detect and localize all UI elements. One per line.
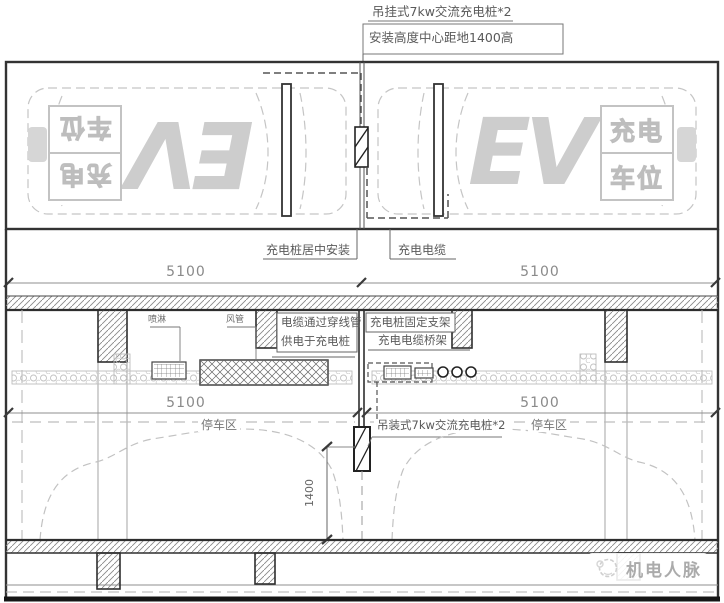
logo-icon xyxy=(594,555,620,581)
charging-space-sign: 充电 车位 xyxy=(600,105,674,201)
label-conduit-1: 电缆通过穿线管 xyxy=(281,316,362,330)
plan-dim-left: 5100 xyxy=(158,264,214,281)
ev-marking-left-stall: EV 充电 车位 xyxy=(42,94,254,212)
label-pile-centered: 充电桩居中安装 xyxy=(266,243,350,257)
label-duct: 风管 xyxy=(226,315,244,326)
label-sprinkler: 喷淋 xyxy=(148,315,166,326)
note-mounting-height: 安装高度中心距地1400高 xyxy=(369,30,513,45)
label-parking-area-right: 停车区 xyxy=(528,418,570,432)
plan-dim-right: 5100 xyxy=(512,264,568,281)
charging-pile-plan-symbol xyxy=(355,127,368,167)
label-pile-bracket: 充电桩固定支架 xyxy=(370,316,451,330)
label-charging-cable: 充电电缆 xyxy=(398,243,446,257)
label-parking-area-left: 停车区 xyxy=(198,418,240,432)
ev-charger-installation-drawing: EV 充电 车位 EV 充电 车位 吊挂式7kw交流充电桩*2 安装高度中心距地… xyxy=(0,0,724,603)
pile-bar-right xyxy=(434,84,443,216)
plan-dimensions xyxy=(4,229,720,287)
air-duct xyxy=(200,360,328,385)
label-conduit-2: 供电于充电桩 xyxy=(281,335,350,349)
section-dimensions xyxy=(4,408,720,417)
watermark: 机电人脉 xyxy=(588,553,708,583)
pile-bar-left xyxy=(282,84,291,216)
ev-ground-letters: EV xyxy=(468,98,590,208)
drawing-linework xyxy=(0,0,724,603)
ceiling-slab xyxy=(6,296,718,310)
charging-space-sign: 充电 车位 xyxy=(48,105,122,201)
watermark-text: 机电人脉 xyxy=(626,556,702,581)
note-hanging-charger: 吊挂式7kw交流充电桩*2 xyxy=(372,4,512,19)
label-suspended-charger: 吊装式7kw交流充电桩*2 xyxy=(374,419,508,433)
ev-marking-right-stall: EV 充电 车位 xyxy=(468,94,680,212)
height-dim-text: 1400 xyxy=(303,468,317,518)
section-view xyxy=(4,229,720,599)
label-cable-tray: 充电电缆桥架 xyxy=(378,334,447,348)
section-dim-left: 5100 xyxy=(158,395,214,412)
downstand-beams xyxy=(98,310,627,362)
section-dim-right: 5100 xyxy=(512,395,568,412)
ev-ground-letters: EV xyxy=(132,98,254,208)
label-leaders xyxy=(150,327,256,361)
sprinkler-pipe xyxy=(152,362,186,379)
